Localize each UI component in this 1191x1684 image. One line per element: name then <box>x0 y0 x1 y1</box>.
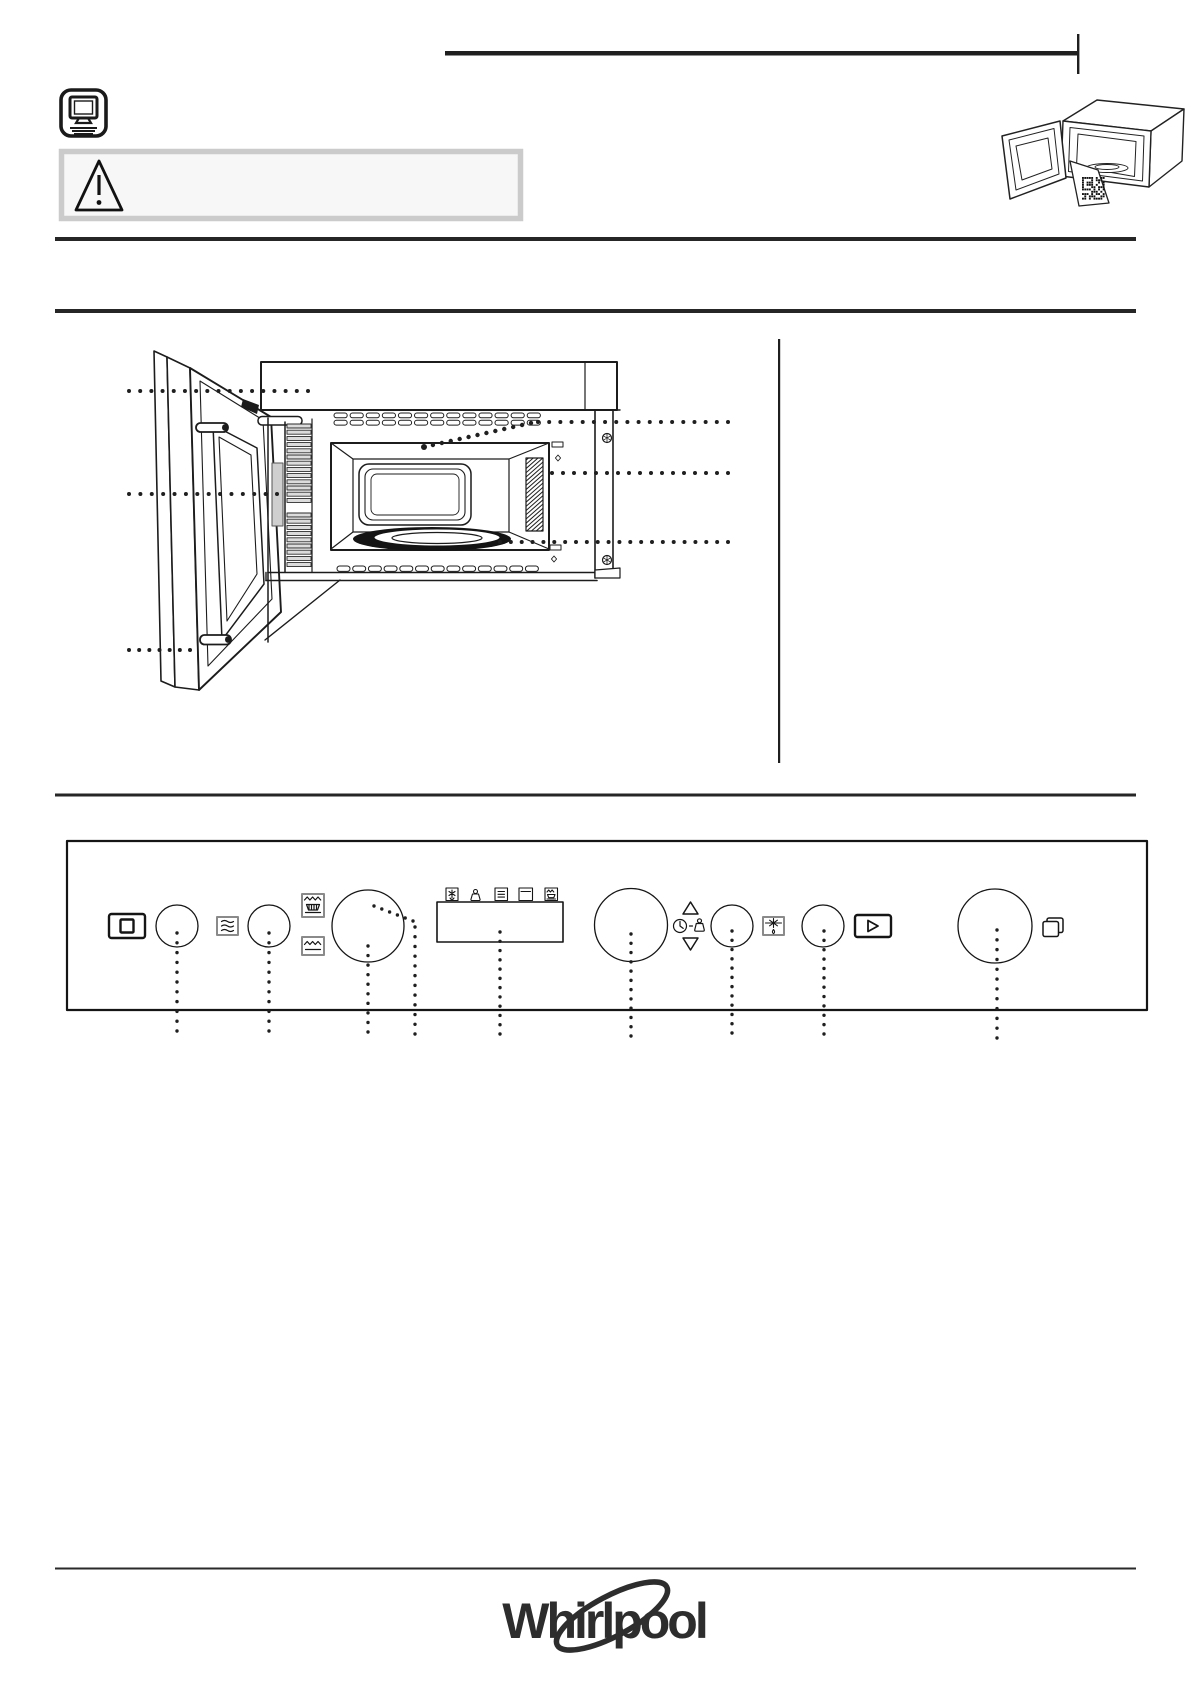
header-line <box>445 51 1078 56</box>
monitor-stand <box>76 118 91 123</box>
leader-knob-4 <box>822 929 825 1035</box>
clock-weight-indicator <box>674 919 705 933</box>
monitor-keyboard <box>70 128 97 134</box>
manual-page: Whirlpool <box>0 0 1191 1684</box>
steam-button[interactable] <box>217 917 238 935</box>
function-knob-2[interactable] <box>248 905 290 947</box>
door-open-indicator <box>1043 918 1063 937</box>
online-manual-monitor-icon <box>61 90 106 136</box>
footer-rule <box>55 1568 1136 1570</box>
whirlpool-logo-text: Whirlpool <box>502 1593 706 1649</box>
leader-selector-center <box>629 932 632 1037</box>
leader-anchor-dot <box>421 444 427 450</box>
parts-diagram <box>127 351 730 690</box>
leader-selector-ring-diagonal <box>372 904 414 922</box>
leader-selector-right <box>995 928 998 1039</box>
front-frame-vent-slats <box>287 424 311 567</box>
divider-1 <box>55 237 1136 241</box>
menu-box-icon <box>495 888 508 901</box>
header-end-tick <box>1077 34 1079 74</box>
bracket-screw-top <box>603 434 612 443</box>
display <box>437 902 563 942</box>
leader-side-vent <box>550 471 730 475</box>
stop-button[interactable] <box>109 914 145 938</box>
warning-box-frame <box>62 152 521 219</box>
grill-steam-combi-button[interactable] <box>302 894 324 917</box>
weight-icon <box>695 919 705 931</box>
leader-cavity-ceiling <box>536 420 730 424</box>
jet-defrost-button[interactable] <box>763 917 784 935</box>
divider-2 <box>55 309 1136 313</box>
leader-selector-left <box>366 944 369 1033</box>
bracket-screw-bottom <box>603 556 612 565</box>
turntable <box>353 527 511 551</box>
divider-3 <box>55 794 1136 797</box>
clock-icon <box>674 920 687 933</box>
top-frame-panel <box>261 362 617 410</box>
defrost-box-icon <box>446 888 458 901</box>
leader-display <box>498 930 501 1035</box>
header-illustration-microwave-qr <box>1002 100 1184 206</box>
grill-button[interactable] <box>302 937 324 955</box>
control-panel <box>67 841 1147 1040</box>
leader-selector-ring <box>413 925 416 1035</box>
grill-box-icon <box>545 888 558 901</box>
illus-turntable-inner <box>1095 165 1119 170</box>
page-canvas: Whirlpool <box>0 0 1191 1684</box>
leader-turntable <box>498 540 730 544</box>
triangle-up-icon[interactable] <box>683 902 698 914</box>
bottom-vent-slots <box>337 566 538 571</box>
cavity-back-wall <box>353 459 509 532</box>
selector-knob-left[interactable] <box>332 890 404 962</box>
header-rule <box>445 34 1079 74</box>
mounting-bracket <box>550 410 620 578</box>
door-hinge-pin-top <box>196 423 228 432</box>
function-knob-1[interactable] <box>156 905 198 947</box>
display-indicators <box>446 888 558 901</box>
monitor-screen-inner <box>75 101 93 114</box>
selector-knob-right[interactable] <box>958 889 1032 963</box>
triangle-down-icon[interactable] <box>683 938 698 950</box>
weight-icon <box>471 890 480 901</box>
side-vent-hatch <box>526 441 543 548</box>
diagram-body <box>261 362 620 642</box>
warning-box <box>62 152 521 219</box>
selector-knob-center[interactable] <box>595 889 668 962</box>
footer-logo: Whirlpool <box>502 1569 706 1663</box>
door-hinge-pin-bottom <box>200 635 231 645</box>
leader-knob-3 <box>730 929 733 1034</box>
top-vent-slots <box>334 413 540 425</box>
door-box-icon <box>519 888 533 901</box>
cavity-window-outer <box>359 464 471 525</box>
legend-column-rule <box>778 339 780 763</box>
start-button[interactable] <box>855 915 891 937</box>
